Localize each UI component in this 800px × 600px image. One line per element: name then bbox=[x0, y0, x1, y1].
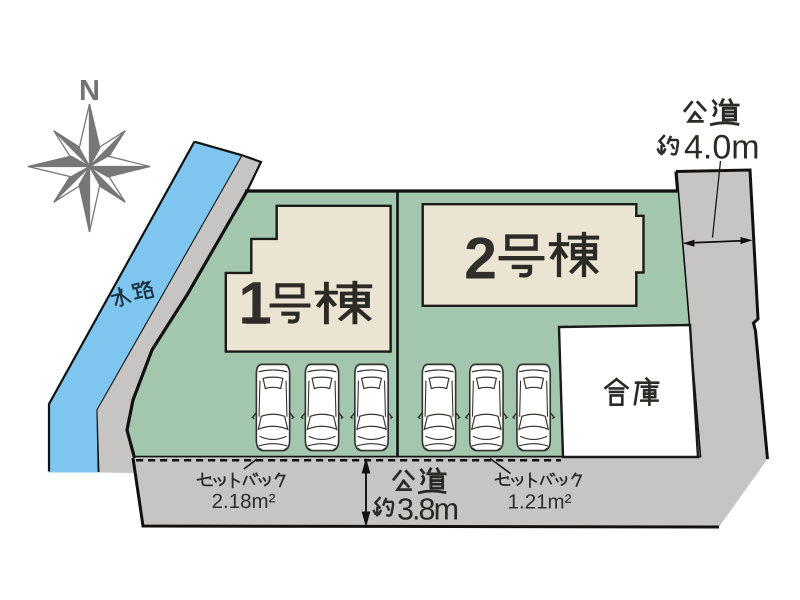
svg-text:1: 1 bbox=[238, 269, 271, 336]
svg-text:2.18m²: 2.18m² bbox=[212, 490, 276, 513]
svg-text:1.21m²: 1.21m² bbox=[508, 490, 572, 513]
svg-text:4.0m: 4.0m bbox=[684, 129, 760, 167]
svg-text:3.8m: 3.8m bbox=[397, 493, 459, 527]
svg-text:2: 2 bbox=[464, 225, 497, 291]
svg-text:N: N bbox=[79, 75, 100, 107]
